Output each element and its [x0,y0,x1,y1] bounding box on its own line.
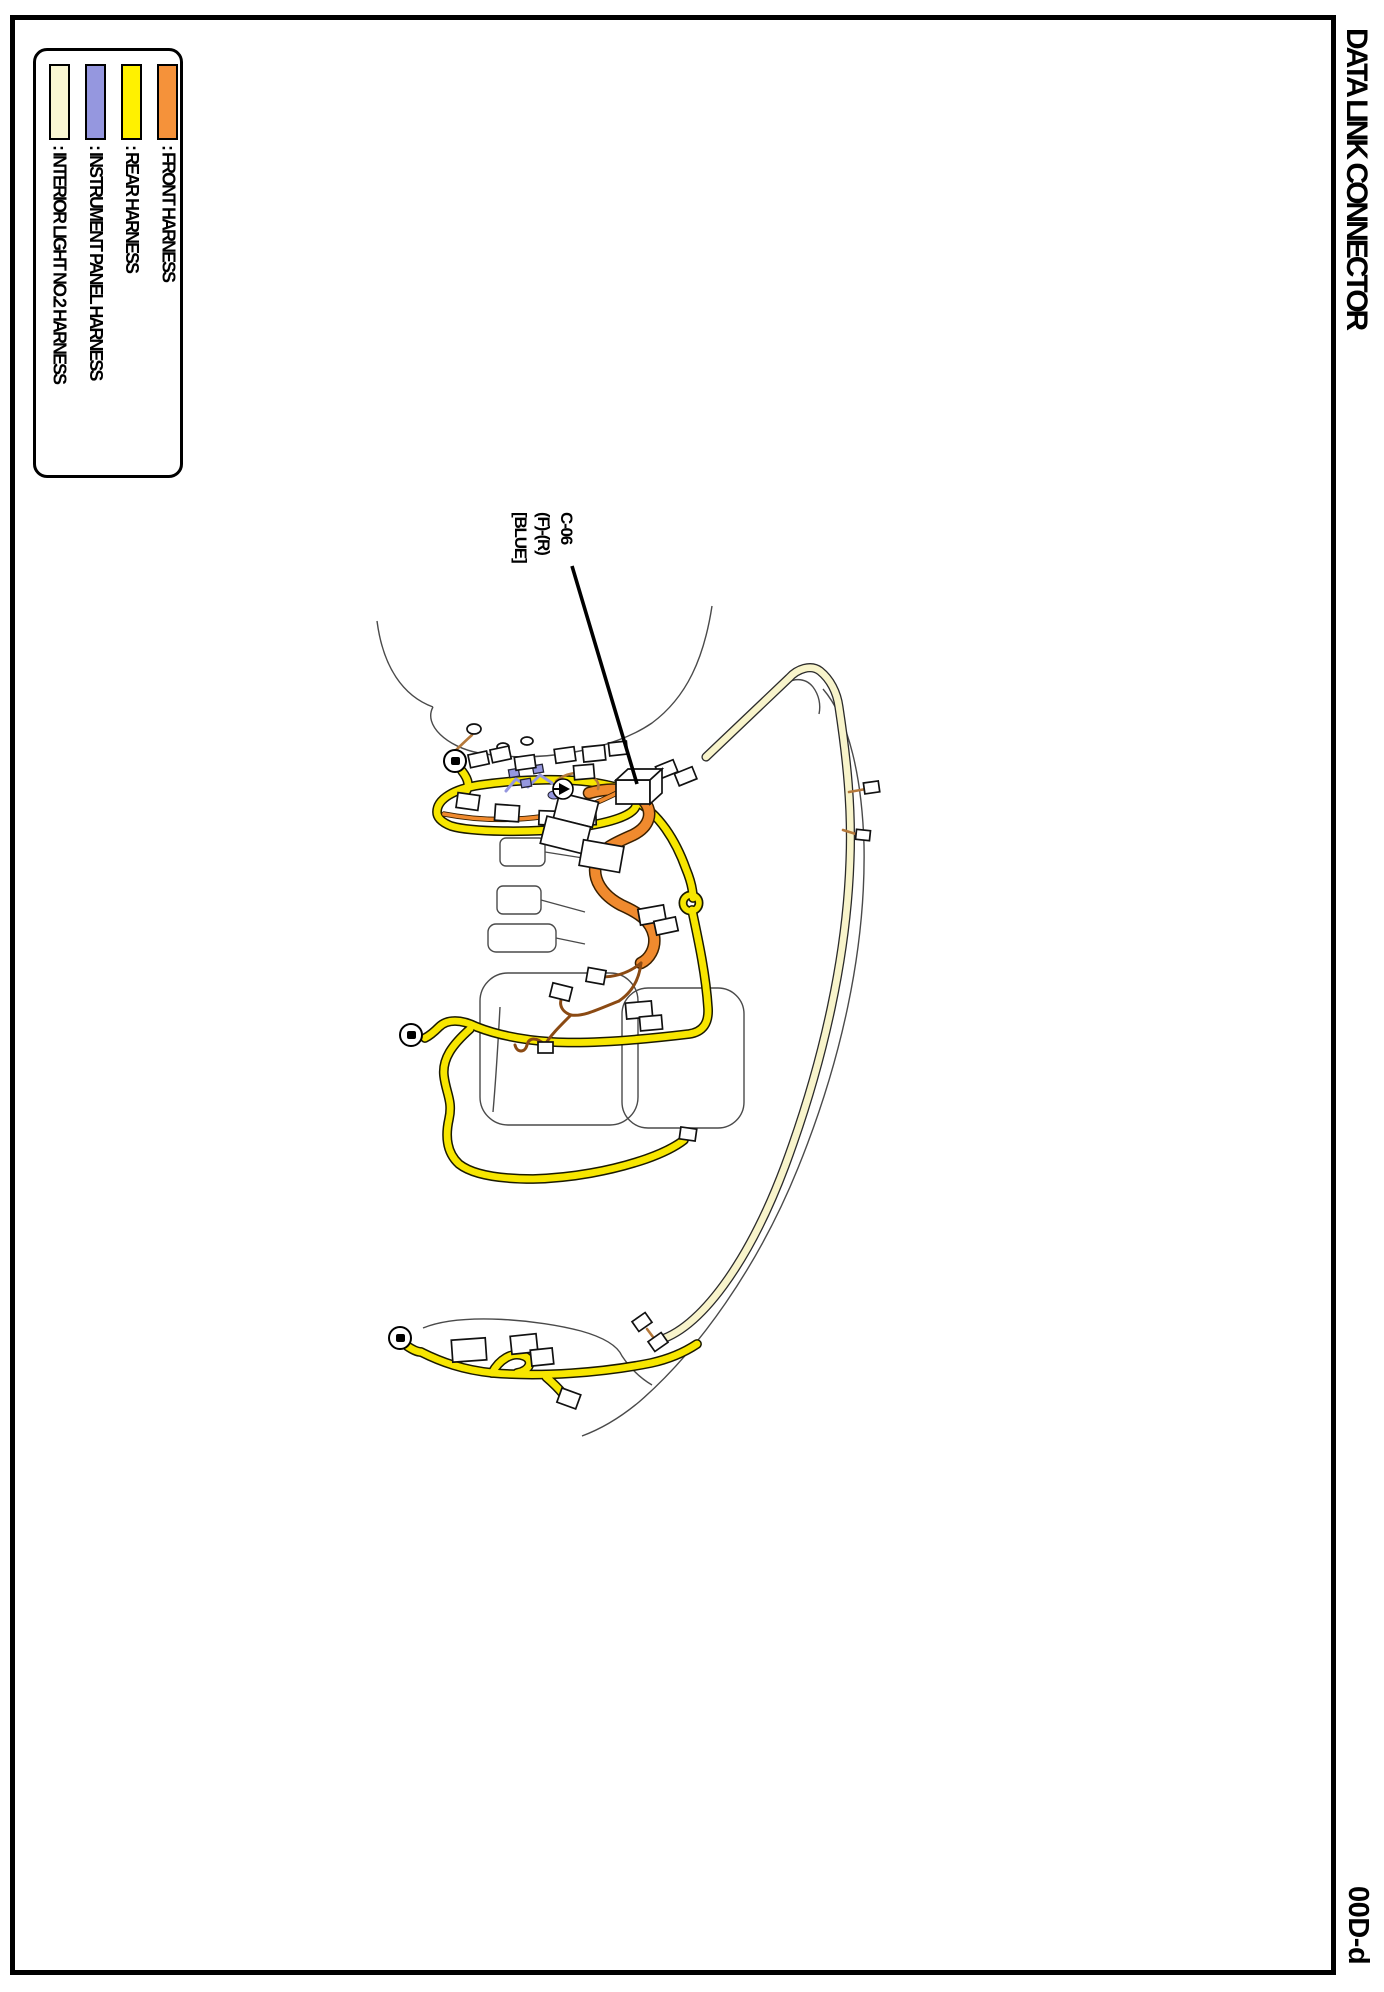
instrument-panel-harness [506,764,560,799]
page-code: 00D-d [1340,1886,1375,1964]
harness-legend: : INTERIOR LIGHT NO.2 HARNESS : INSTRUME… [33,48,183,478]
ground-symbol [400,1024,422,1046]
callout-connector-type: (F)-(R) [531,512,554,562]
component-boxes [488,838,585,952]
legend-label: : INTERIOR LIGHT NO.2 HARNESS [49,145,70,383]
callout-connector-id: C-06 [554,512,577,562]
view-arrow-icon [553,779,573,799]
ground-symbol [389,1327,411,1349]
manual-page: : INTERIOR LIGHT NO.2 HARNESS : INSTRUME… [0,0,1384,1992]
interior-light-harness [647,668,866,1341]
callout-connector-color: [BLUE] [508,512,531,562]
front-harness-swatch [157,64,178,140]
legend-label: : REAR HARNESS [121,145,142,272]
page-title: DATA LINK CONNECTOR [1338,28,1374,328]
legend-label: : FRONT HARNESS [157,145,178,281]
branch-wires [446,724,641,1051]
legend-item-rear-harness: : REAR HARNESS [120,64,144,475]
legend-item-instrument-panel-harness: : INSTRUMENT PANEL HARNESS [83,64,107,475]
wiring-diagram [0,0,1384,1992]
legend-label: : INSTRUMENT PANEL HARNESS [85,145,106,379]
legend-item-front-harness: : FRONT HARNESS [156,64,180,475]
interior-light-no2-swatch [49,64,70,140]
data-link-connector [616,769,662,804]
rear-harness-swatch [121,64,142,140]
legend-item-interior-light-no2-harness: : INTERIOR LIGHT NO.2 HARNESS [47,64,71,475]
ground-symbol [444,750,466,772]
rear-harness [407,771,708,1394]
connector-callout: C-06 (F)-(R) [BLUE] [508,512,577,562]
instrument-panel-swatch [85,64,106,140]
